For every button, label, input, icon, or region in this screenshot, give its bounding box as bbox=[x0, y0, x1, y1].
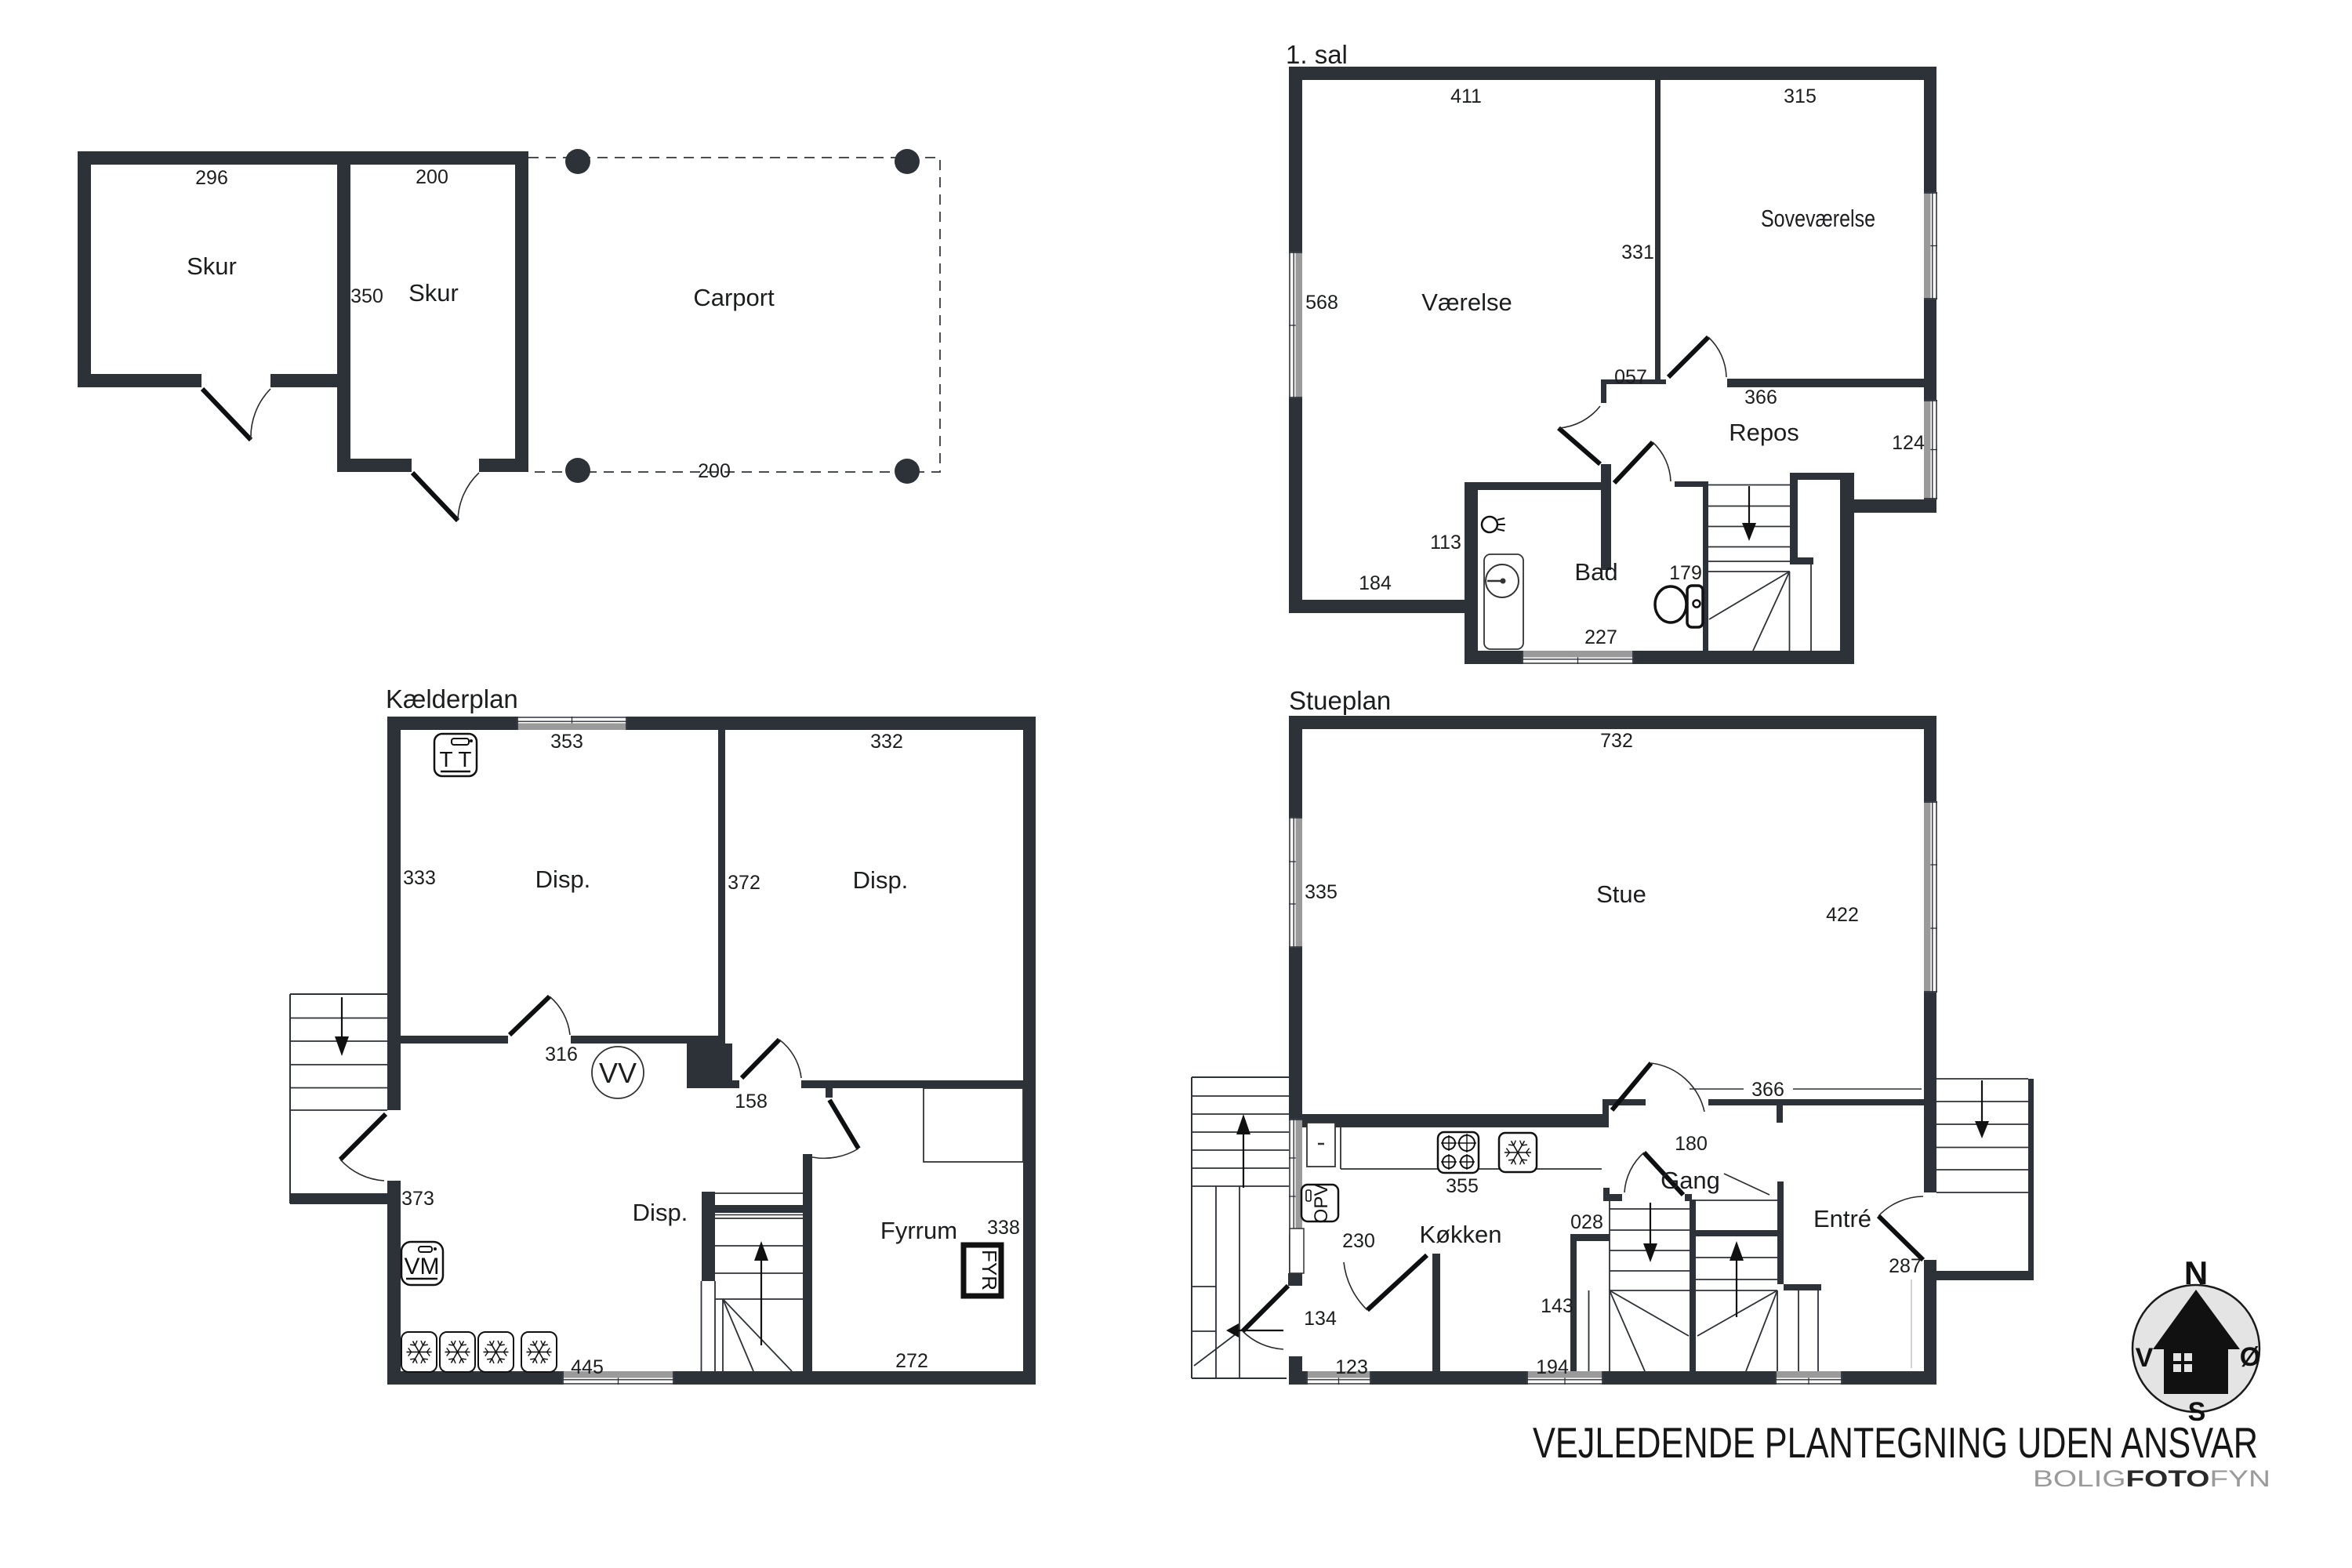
svg-text:Soveværelse: Soveværelse bbox=[1761, 205, 1875, 232]
svg-text:732: 732 bbox=[1600, 730, 1633, 752]
svg-text:N: N bbox=[2184, 1254, 2208, 1291]
svg-text:Stueplan: Stueplan bbox=[1289, 686, 1391, 715]
svg-text:333: 333 bbox=[403, 867, 436, 889]
svg-text:028: 028 bbox=[1570, 1211, 1603, 1233]
svg-text:BOLIGFOTOFYN: BOLIGFOTOFYN bbox=[2033, 1466, 2270, 1492]
svg-text:372: 372 bbox=[728, 872, 760, 894]
svg-text:355: 355 bbox=[1446, 1175, 1479, 1197]
svg-text:200: 200 bbox=[416, 166, 448, 188]
svg-text:338: 338 bbox=[987, 1217, 1020, 1239]
svg-text:Gang: Gang bbox=[1661, 1167, 1720, 1194]
svg-text:057: 057 bbox=[1614, 366, 1647, 388]
svg-text:200: 200 bbox=[698, 460, 731, 482]
svg-text:Disp.: Disp. bbox=[535, 866, 591, 893]
svg-text:VV: VV bbox=[599, 1057, 637, 1089]
svg-text:Repos: Repos bbox=[1729, 419, 1799, 446]
svg-text:Ø: Ø bbox=[2240, 1342, 2260, 1372]
svg-text:FYR: FYR bbox=[978, 1250, 1001, 1290]
svg-text:332: 332 bbox=[870, 731, 903, 753]
svg-text:366: 366 bbox=[1744, 387, 1777, 408]
svg-text:Køkken: Køkken bbox=[1419, 1221, 1501, 1248]
svg-text:VM: VM bbox=[405, 1254, 440, 1279]
svg-text:316: 316 bbox=[545, 1044, 578, 1065]
svg-text:568: 568 bbox=[1305, 292, 1338, 314]
svg-text:OPV: OPV bbox=[1311, 1184, 1332, 1224]
svg-text:287: 287 bbox=[1889, 1255, 1922, 1277]
svg-text:411: 411 bbox=[1450, 85, 1482, 107]
svg-text:Værelse: Værelse bbox=[1421, 289, 1512, 316]
svg-text:1. sal: 1. sal bbox=[1286, 40, 1348, 69]
svg-text:Skur: Skur bbox=[408, 279, 459, 307]
svg-text:184: 184 bbox=[1359, 572, 1392, 594]
svg-text:T T: T T bbox=[440, 747, 472, 771]
svg-text:315: 315 bbox=[1784, 85, 1817, 107]
svg-text:180: 180 bbox=[1675, 1133, 1708, 1155]
svg-text:331: 331 bbox=[1621, 241, 1654, 263]
svg-text:296: 296 bbox=[195, 167, 228, 189]
svg-text:Disp.: Disp. bbox=[853, 866, 909, 894]
svg-text:373: 373 bbox=[401, 1188, 434, 1210]
svg-text:353: 353 bbox=[550, 731, 583, 753]
svg-text:124: 124 bbox=[1892, 432, 1925, 454]
svg-text:158: 158 bbox=[735, 1091, 768, 1112]
svg-text:Bad: Bad bbox=[1574, 558, 1617, 586]
svg-text:Fyrrum: Fyrrum bbox=[880, 1217, 957, 1244]
svg-text:Carport: Carport bbox=[693, 284, 775, 311]
svg-text:Entré: Entré bbox=[1813, 1205, 1871, 1232]
svg-text:422: 422 bbox=[1826, 904, 1859, 926]
svg-text:350: 350 bbox=[350, 285, 383, 307]
svg-text:194: 194 bbox=[1536, 1356, 1569, 1378]
svg-text:230: 230 bbox=[1342, 1230, 1375, 1252]
svg-text:366: 366 bbox=[1751, 1079, 1784, 1101]
svg-text:134: 134 bbox=[1304, 1308, 1337, 1330]
svg-text:Skur: Skur bbox=[187, 252, 237, 280]
svg-text:335: 335 bbox=[1305, 881, 1338, 903]
svg-text:Stue: Stue bbox=[1596, 880, 1646, 908]
svg-text:VEJLEDENDE PLANTEGNING UDEN AN: VEJLEDENDE PLANTEGNING UDEN ANSVAR bbox=[1533, 1418, 2258, 1467]
svg-text:227: 227 bbox=[1584, 626, 1617, 648]
svg-text:123: 123 bbox=[1335, 1356, 1368, 1378]
svg-text:179: 179 bbox=[1669, 562, 1702, 584]
svg-text:113: 113 bbox=[1430, 532, 1461, 554]
svg-text:Disp.: Disp. bbox=[633, 1199, 688, 1226]
svg-text:143: 143 bbox=[1541, 1295, 1573, 1317]
svg-text:272: 272 bbox=[895, 1350, 928, 1372]
svg-text:Kælderplan: Kælderplan bbox=[386, 684, 518, 713]
svg-text:V: V bbox=[2136, 1343, 2154, 1373]
svg-text:445: 445 bbox=[571, 1356, 604, 1378]
